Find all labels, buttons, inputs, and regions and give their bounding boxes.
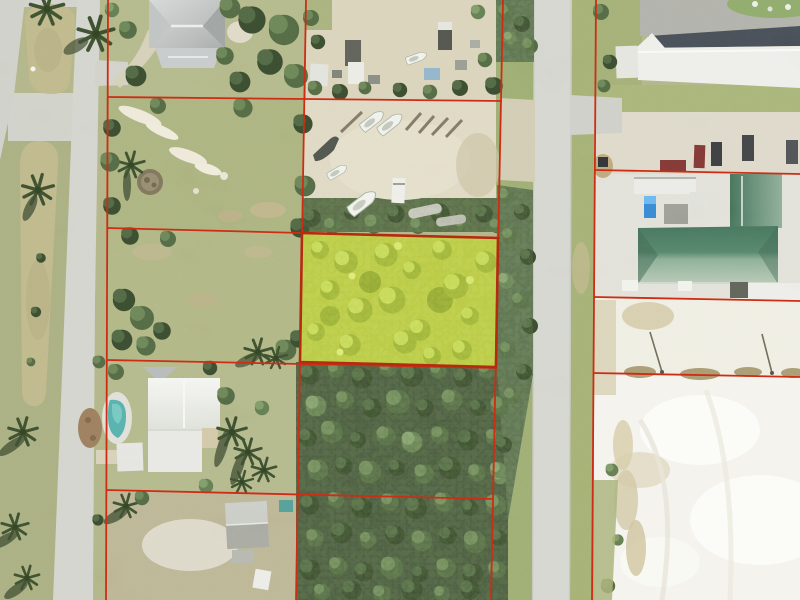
photo-texture: [0, 0, 800, 600]
aerial-map-svg: [0, 0, 800, 600]
aerial-map-image: [0, 0, 800, 600]
